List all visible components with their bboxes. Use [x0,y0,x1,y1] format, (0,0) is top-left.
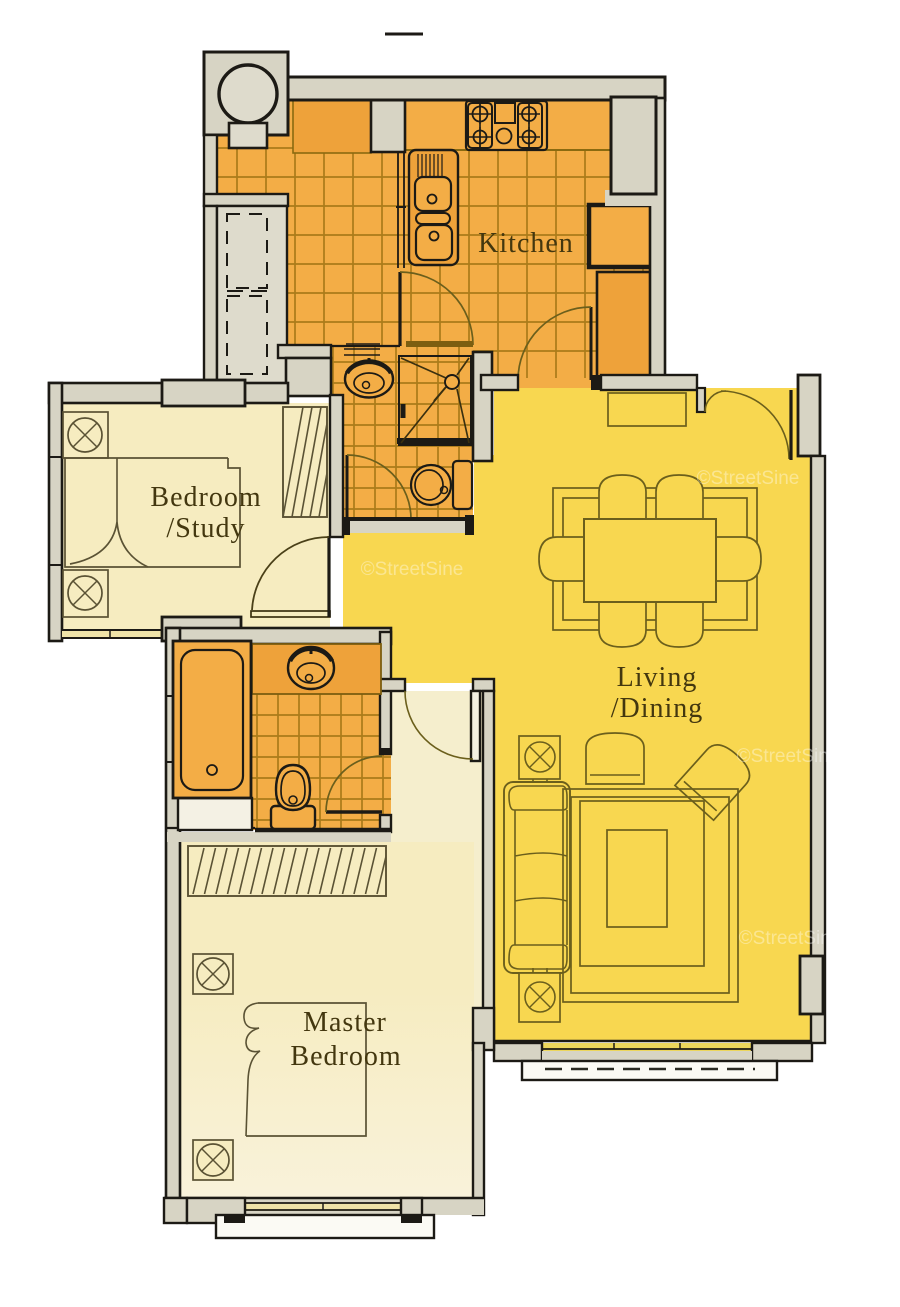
svg-text:/Study: /Study [166,513,245,544]
svg-text:/Dining: /Dining [611,693,704,724]
svg-text:Bedroom: Bedroom [290,1041,401,1072]
svg-text:©StreetSine: ©StreetSine [739,928,842,949]
svg-text:©StreetSine: ©StreetSine [737,746,840,767]
svg-text:Master: Master [303,1007,387,1038]
svg-text:Living: Living [617,662,698,693]
svg-text:©StreetSine: ©StreetSine [697,468,800,489]
svg-text:Kitchen: Kitchen [478,228,574,259]
svg-text:Bedroom: Bedroom [150,482,261,513]
svg-text:©StreetSine: ©StreetSine [361,559,464,580]
